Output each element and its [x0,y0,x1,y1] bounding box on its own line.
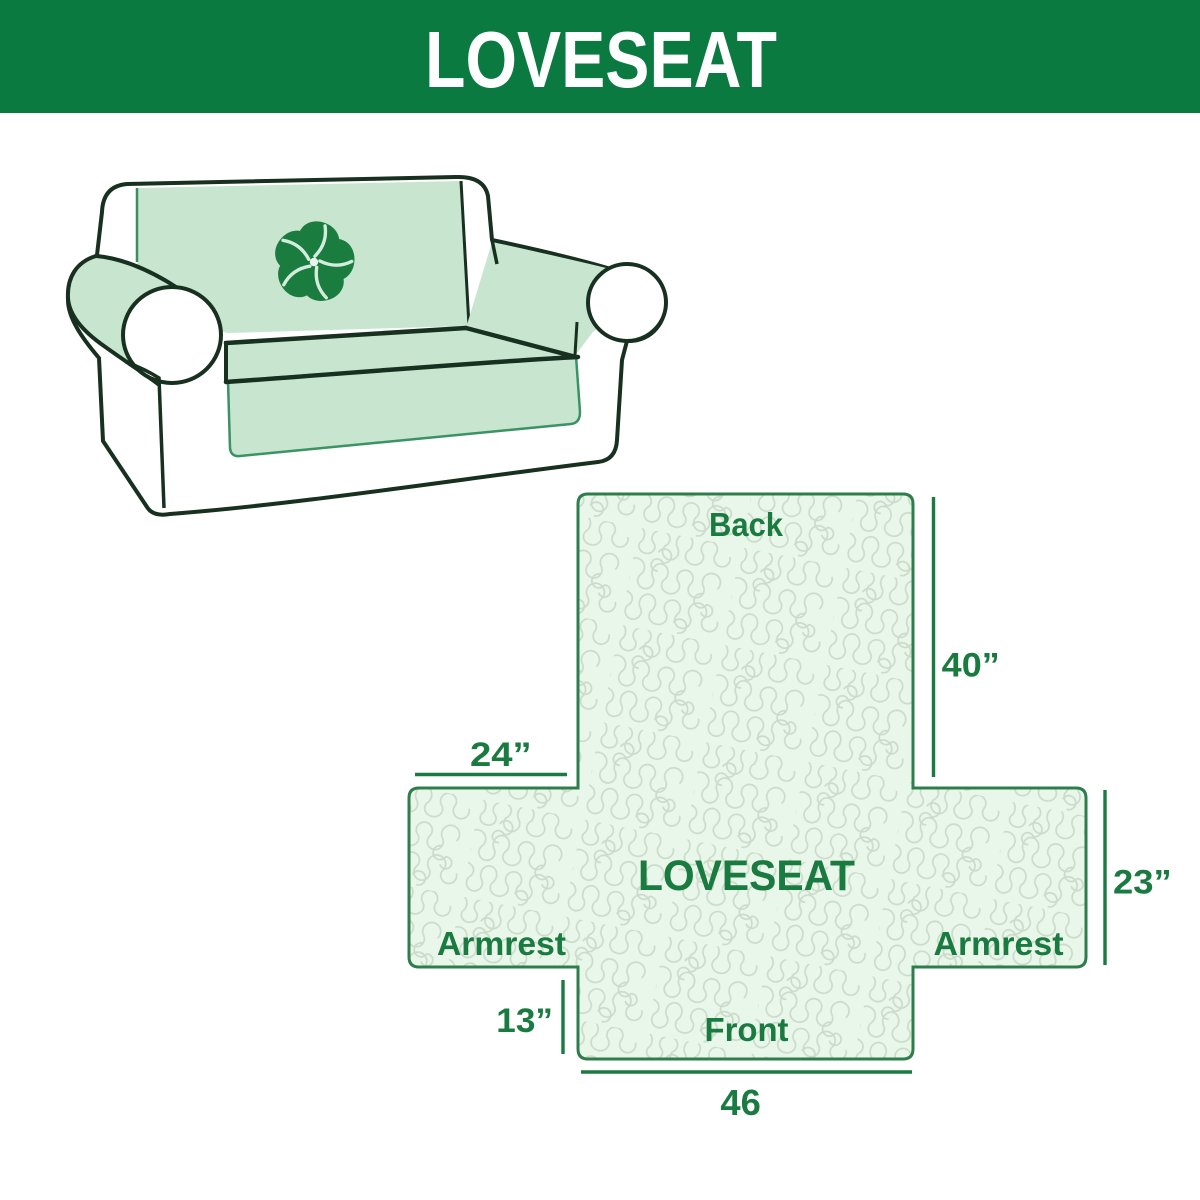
svg-text:LOVESEAT: LOVESEAT [425,15,777,104]
svg-text:24”: 24” [470,736,532,774]
svg-text:23”: 23” [1113,863,1172,901]
svg-text:40”: 40” [942,646,1000,684]
svg-text:Armrest: Armrest [934,925,1064,962]
svg-text:Front: Front [705,1011,789,1048]
svg-text:Armrest: Armrest [437,925,566,962]
svg-text:LOVESEAT: LOVESEAT [638,852,855,900]
svg-text:46: 46 [720,1082,760,1123]
svg-text:Back: Back [709,506,784,543]
svg-text:13”: 13” [496,1002,553,1040]
